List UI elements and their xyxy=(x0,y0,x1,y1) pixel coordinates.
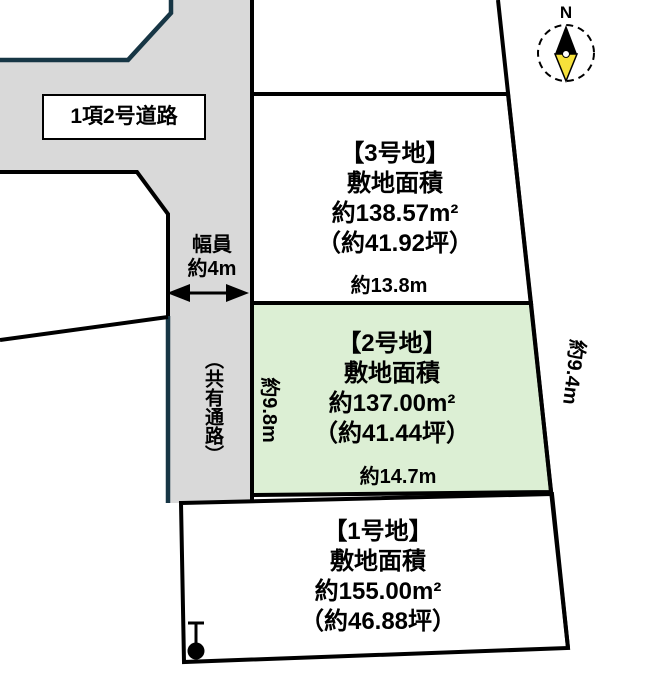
lot-plan-map: 1項2号道路 幅員 約4m （共有通路） 約13.8m 約14.7m 約9.8m… xyxy=(0,0,648,688)
lot2-title: 【2号地】 xyxy=(272,329,512,359)
dimension-lot2-bottom: 約14.7m xyxy=(338,465,458,489)
lot2-area-m2: 約137.00m² xyxy=(272,389,512,419)
lot1-area-tsubo: （約46.88坪） xyxy=(258,607,498,637)
compass-north-label: N xyxy=(546,3,586,23)
lot2-area-caption: 敷地面積 xyxy=(272,359,512,389)
west-neighbor-boundary xyxy=(0,317,168,340)
lot1-title: 【1号地】 xyxy=(258,517,498,547)
corridor-width-line2: 約4m xyxy=(171,257,253,281)
lot3-title: 【3号地】 xyxy=(275,139,515,169)
lot2-area-tsubo: （約41.44坪） xyxy=(272,419,512,449)
lot1-area-m2: 約155.00m² xyxy=(258,577,498,607)
compass-needle-north xyxy=(555,25,577,54)
lot3-area-tsubo: （約41.92坪） xyxy=(275,229,515,259)
road-name-text: 1項2号道路 xyxy=(70,104,177,129)
road-name-label: 1項2号道路 xyxy=(42,94,206,140)
dimension-lot2-top: 約13.8m xyxy=(329,274,449,298)
compass-needle-south xyxy=(555,54,577,81)
shared-passage-label: （共有通路） xyxy=(199,345,225,469)
survey-marker-ball xyxy=(188,643,205,660)
lot3-area-m2: 約138.57m² xyxy=(275,199,515,229)
lot3-area-caption: 敷地面積 xyxy=(275,169,515,199)
lot1-info: 【1号地】 敷地面積 約155.00m² （約46.88坪） xyxy=(258,517,498,637)
lot2-info: 【2号地】 敷地面積 約137.00m² （約41.44坪） xyxy=(272,329,512,449)
corridor-width-label: 幅員 約4m xyxy=(171,233,253,281)
lot1-area-caption: 敷地面積 xyxy=(258,547,498,577)
lot3-info: 【3号地】 敷地面積 約138.57m² （約41.92坪） xyxy=(275,139,515,259)
compass-pivot xyxy=(563,51,570,58)
corridor-width-line1: 幅員 xyxy=(171,233,253,257)
road-south-edge xyxy=(0,172,168,318)
